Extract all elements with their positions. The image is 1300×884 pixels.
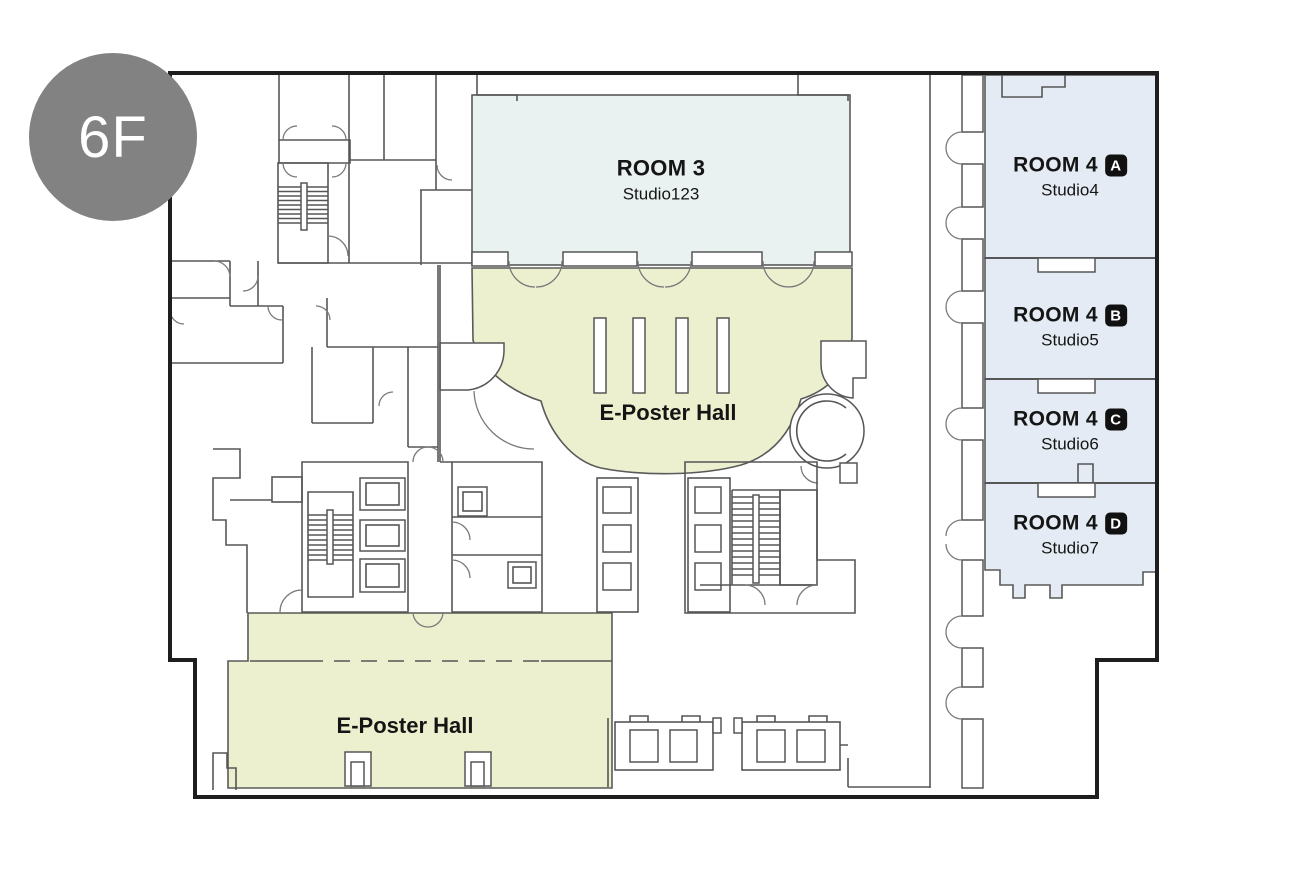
- room4d-label: ROOM 4 D Studio7: [1013, 512, 1127, 559]
- room4d-letter-badge: D: [1105, 513, 1127, 535]
- room4a-name: ROOM 4: [1013, 154, 1098, 178]
- eposter-center-label: E-Poster Hall: [600, 400, 737, 426]
- south-box-units: [608, 716, 930, 787]
- room4d-subtitle: Studio7: [1013, 539, 1127, 559]
- stair-rail: [301, 183, 307, 230]
- round-vestibule: [790, 394, 864, 468]
- stair-rail: [327, 510, 333, 564]
- room3-name: ROOM 3: [617, 156, 706, 182]
- room4b-letter-badge: B: [1105, 305, 1127, 327]
- room4d-name: ROOM 4: [1013, 512, 1098, 536]
- room4c-name: ROOM 4: [1013, 408, 1098, 432]
- floor-badge: 6F: [29, 53, 197, 221]
- room4c-subtitle: Studio6: [1013, 435, 1127, 455]
- room4a-label: ROOM 4 A Studio4: [1013, 154, 1127, 201]
- room4b-label: ROOM 4 B Studio5: [1013, 304, 1127, 351]
- center-service-block: [452, 462, 542, 612]
- room3-subtitle: Studio123: [617, 185, 706, 205]
- elevator-core-west: [280, 447, 443, 627]
- room3-label: ROOM 3 Studio123: [617, 156, 706, 205]
- eposter-south-label: E-Poster Hall: [337, 713, 474, 739]
- northwest-rooms-walls: [170, 73, 472, 613]
- room4b-name: ROOM 4: [1013, 304, 1098, 328]
- room4b-subtitle: Studio5: [1013, 331, 1127, 351]
- room4-door-arcs: [946, 132, 962, 719]
- room4-door-jambs: [962, 75, 983, 788]
- room4a-letter-badge: A: [1105, 155, 1127, 177]
- eposter-hall-south-area: [228, 613, 612, 788]
- room4c-label: ROOM 4 C Studio6: [1013, 408, 1127, 455]
- floor-plan-page: 6F ROOM 3 Studio123 ROOM 4 A Studio4 ROO…: [0, 0, 1300, 884]
- room4c-letter-badge: C: [1105, 409, 1127, 431]
- elevator-banks-mid: [597, 478, 730, 612]
- room4a-subtitle: Studio4: [1013, 181, 1127, 201]
- east-corridor: [930, 73, 983, 788]
- elevators-west: [360, 478, 405, 592]
- stair-rail: [753, 495, 759, 583]
